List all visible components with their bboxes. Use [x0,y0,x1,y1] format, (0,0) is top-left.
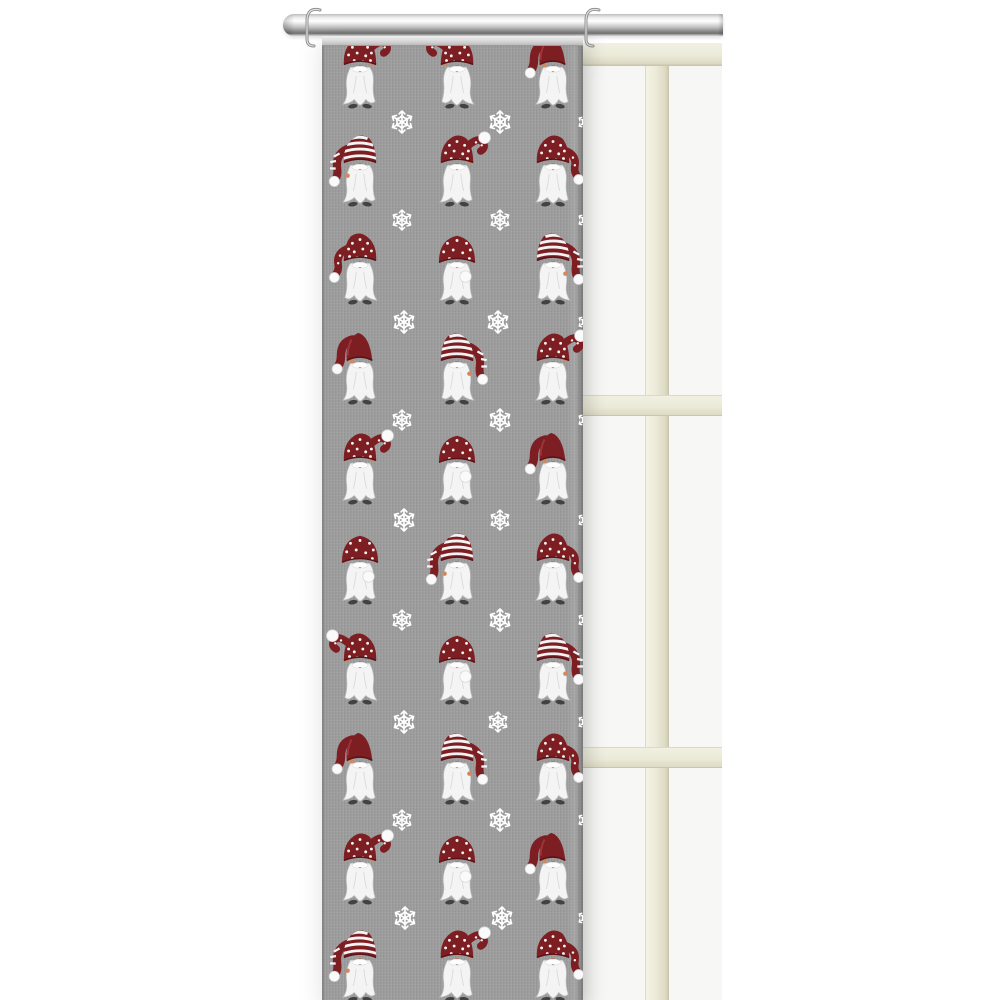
curtain-pattern-svg [322,36,583,1000]
snowflake-motif [489,609,511,631]
snowflake-motif [488,712,508,732]
curtain-fabric [322,36,583,1000]
snowflake-motif [489,409,511,431]
snowflake-motif [578,314,583,330]
gnome-motif-dotted_arc [343,430,394,505]
snowflake-motif [491,907,513,929]
window-mullion [645,65,669,1000]
gnome-motif-striped [440,734,488,806]
window-glazing-bar-upper [578,395,722,416]
snowflake-motif [393,311,415,333]
gnome-motif-dome [439,236,475,305]
gnome-motif-striped [440,334,488,406]
gnome-motif-solid [332,733,375,805]
gnome-motif-dotted_arc [536,330,583,405]
gnome-motif-dotted_arc [440,132,491,207]
snowflake-motif [578,212,583,228]
gnome-motif-dotted_droop [536,931,583,1000]
snowflake-motif [578,812,583,828]
gnome-motif-striped [329,931,377,1000]
gnome-motif-striped [426,534,474,606]
gnome-motif-dotted_arc [327,630,378,705]
gnome-motif-striped [536,234,583,306]
snowflake-motif [393,711,415,733]
gnome-motif-dotted_arc [343,830,394,905]
window-glazing-bar-lower [578,747,722,768]
snowflake-motif [392,210,412,230]
snowflake-motif [578,412,583,428]
gnome-motif-dotted_droop [536,734,583,806]
snowflake-motif [487,311,509,333]
gnome-motif-striped [329,136,377,208]
gnome-motif-dotted_arc [343,36,394,109]
snowflake-motif [392,410,412,430]
snowflake-motif [490,210,510,230]
gnome-motif-dome [439,636,475,705]
gnome-motif-solid [332,333,375,405]
gnome-motif-dome [439,836,475,905]
gnome-motif-dome [439,436,475,505]
snowflake-motif [578,114,583,130]
gnome-motif-solid [525,37,568,109]
snowflake-motif [393,509,415,531]
gnome-motif-dotted_arc [424,36,475,109]
gnome-motif-dotted_droop [536,534,583,606]
curtain-panel [322,36,583,1000]
snowflake-motif [490,510,510,530]
snowflake-motif [489,111,511,133]
curtain-rod [283,14,723,36]
snowflake-motif [578,910,583,926]
gnome-motif-dotted_arc [440,927,491,1000]
gnome-motif-dotted_droop [536,136,583,208]
snowflake-motif [391,111,413,133]
gnome-motif-solid [525,833,568,905]
snowflake-motif [578,612,583,628]
gnome-motif-dome [342,536,378,605]
snowflake-motif [394,907,416,929]
window [578,43,722,1000]
gnome-motif-striped [536,634,583,706]
scene [0,0,1000,1000]
snowflake-motif [578,512,583,528]
gnome-motif-solid [525,433,568,505]
snowflake-motif [489,809,511,831]
gnome-motif-dotted_droop [329,234,377,306]
curtain-top-hem [322,36,583,46]
snowflake-motif [392,810,412,830]
snowflake-motif [578,714,583,730]
snowflake-motif [392,610,412,630]
